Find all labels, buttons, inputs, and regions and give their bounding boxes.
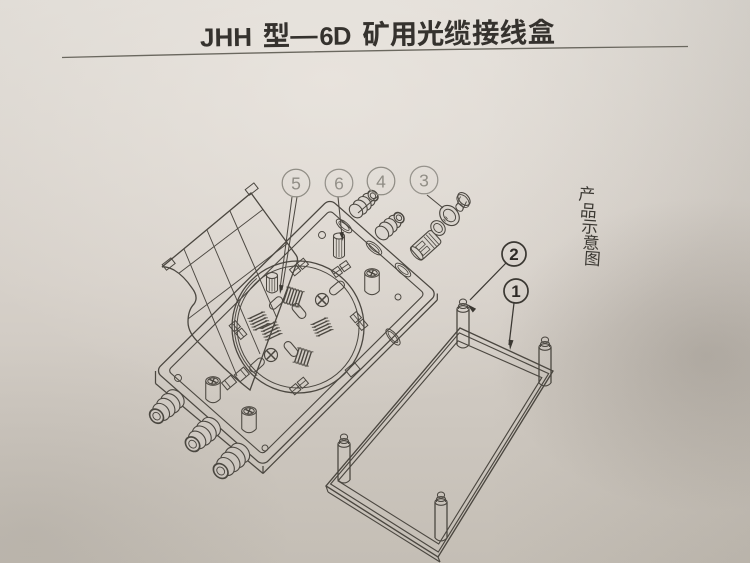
svg-text:JHH: JHH (200, 22, 252, 53)
svg-text:1: 1 (511, 282, 520, 301)
svg-text:6: 6 (334, 173, 344, 193)
svg-text:2: 2 (509, 245, 518, 264)
svg-text:6D: 6D (319, 23, 351, 51)
svg-text:5: 5 (291, 173, 301, 193)
svg-text:4: 4 (376, 171, 386, 191)
svg-text:3: 3 (419, 170, 429, 190)
